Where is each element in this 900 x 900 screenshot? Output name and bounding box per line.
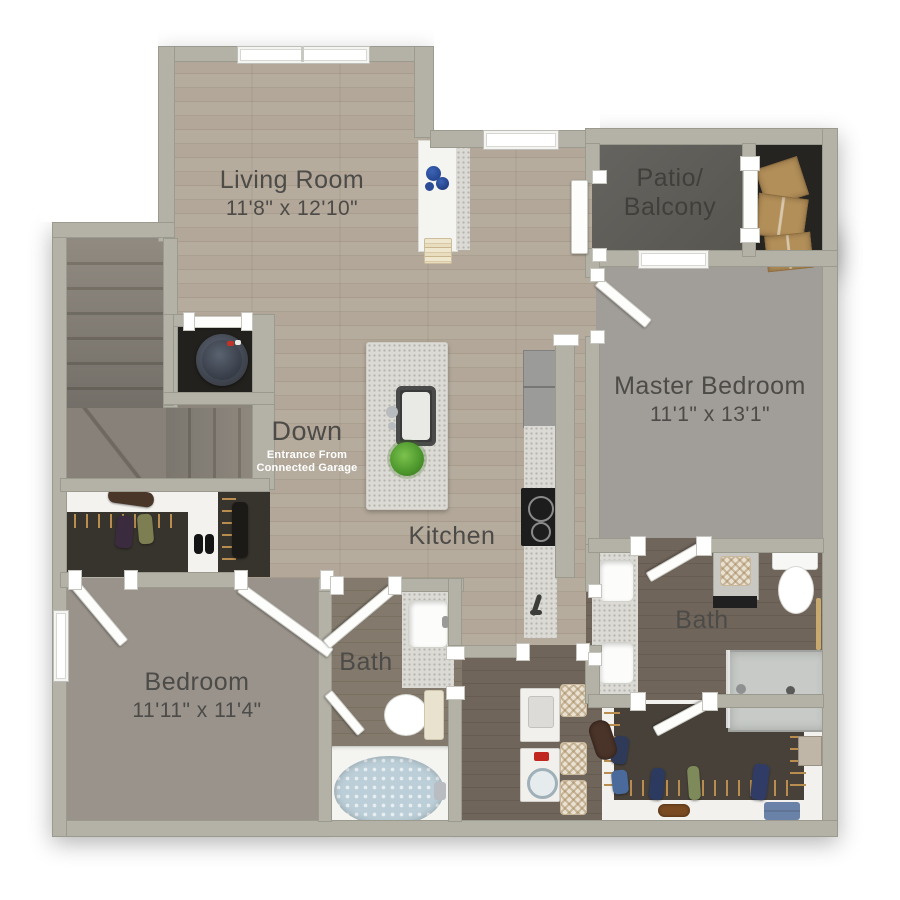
door-jamb — [446, 686, 465, 700]
wall — [52, 222, 67, 837]
wall — [706, 694, 824, 708]
entry-nook-floor — [188, 486, 218, 576]
stove-burner-icon — [531, 522, 551, 542]
wall — [822, 128, 838, 837]
washer-lid-icon — [528, 696, 554, 728]
kitchen-label: Kitchen — [372, 522, 532, 551]
wall — [52, 222, 175, 238]
hanging-clothes-icon — [137, 513, 155, 544]
door-jamb — [234, 570, 248, 590]
door-jamb — [183, 312, 195, 331]
toilet-bowl — [778, 566, 814, 614]
hanging-clothes-icon — [115, 515, 135, 548]
door-jamb — [588, 652, 602, 666]
door-jamb — [446, 646, 465, 660]
folded-jeans-icon — [764, 802, 800, 820]
kitchen-counter — [524, 426, 557, 488]
plant-icon — [390, 442, 424, 476]
shower-glass — [726, 650, 730, 728]
living-room-dims: 11'8" x 12'10" — [167, 197, 417, 221]
exterior-area — [40, 26, 158, 222]
door-jamb — [588, 584, 602, 598]
door-jamb — [68, 570, 82, 590]
door-jamb — [696, 536, 712, 556]
kitchen-sink-faucet-icon — [530, 610, 542, 615]
garage-entrance-note: Entrance From — [232, 449, 382, 462]
living-room-label: Living Room — [167, 166, 417, 195]
master-sink — [598, 642, 634, 684]
bedroom-dims: 11'11" x 11'4" — [72, 699, 322, 723]
water-heater-valve-icon — [227, 341, 234, 346]
wall — [414, 46, 434, 138]
door-jamb — [124, 570, 138, 590]
wall — [585, 336, 600, 546]
blue-bowl-icon — [436, 177, 449, 190]
shoes-icon — [194, 534, 203, 554]
water-heater-closet-door — [187, 316, 247, 328]
basket-icon — [720, 556, 751, 586]
towel-basket-icon — [560, 684, 587, 717]
wall — [555, 338, 575, 578]
door-jamb — [630, 536, 646, 556]
island-faucet-icon — [386, 406, 398, 418]
bedroom-label: Bedroom — [72, 668, 322, 697]
master-bath-label: Bath — [652, 606, 752, 635]
staircase-upper-flight — [67, 240, 163, 408]
door-jamb — [388, 576, 402, 595]
dryer-door-icon — [527, 768, 558, 799]
wall — [585, 250, 838, 267]
wall — [448, 690, 462, 822]
tub-faucet-icon — [434, 782, 446, 800]
storage-door — [743, 166, 758, 232]
island-sink-basin — [402, 392, 430, 440]
stove-burner-icon — [528, 496, 554, 522]
toilet-tank — [424, 690, 444, 740]
shoes-icon — [658, 804, 690, 817]
door-jamb — [630, 692, 646, 711]
patio-door — [571, 180, 588, 254]
door-jamb — [590, 268, 605, 282]
refrigerator — [523, 350, 559, 428]
water-heater-cap-icon — [235, 340, 241, 345]
bath-label: Bath — [316, 648, 416, 677]
towel-bar-icon — [816, 598, 821, 650]
door-jamb — [740, 228, 760, 243]
wall — [585, 128, 838, 145]
exterior-area — [434, 26, 600, 130]
blue-bowl-icon — [425, 182, 434, 191]
door-jamb — [590, 330, 605, 344]
wall — [52, 820, 838, 837]
storage-bin-icon — [798, 736, 822, 766]
door-jamb — [516, 643, 530, 661]
door-jamb — [740, 156, 760, 171]
window — [638, 250, 709, 269]
wall — [60, 478, 270, 492]
shoes-icon — [205, 534, 214, 554]
hanging-clothes-icon — [611, 769, 629, 795]
console-table-edge — [456, 140, 470, 250]
kitchen-counter — [524, 546, 557, 638]
wall — [700, 538, 824, 553]
floor-plan: Living Room 11'8" x 12'10" Patio/ Balcon… — [0, 0, 900, 900]
wall — [128, 572, 240, 588]
window — [483, 130, 559, 150]
toilet-bowl — [384, 694, 428, 736]
shower-valve-icon — [736, 684, 746, 694]
wall — [448, 578, 462, 650]
hanging-clothes-icon — [232, 502, 248, 558]
window — [53, 610, 69, 682]
towel-basket-icon — [560, 780, 587, 815]
patio-label: Balcony — [597, 193, 743, 222]
console-table — [418, 140, 458, 252]
patio-label: Patio/ — [597, 164, 743, 193]
refrigerator-door-split — [523, 386, 557, 388]
door-jamb — [241, 312, 253, 331]
towel-basket-icon — [560, 742, 587, 775]
door-jamb — [330, 576, 344, 595]
stairs-down-label: Down — [232, 416, 382, 447]
hanging-clothes-icon — [687, 766, 701, 801]
master-bedroom-dims: 11'1" x 13'1" — [585, 403, 835, 427]
master-sink — [598, 560, 634, 602]
door-jamb — [702, 692, 718, 711]
door-jamb — [592, 248, 607, 262]
bathtub-water — [334, 756, 444, 826]
window-mullion — [301, 46, 304, 62]
master-bedroom-label: Master Bedroom — [585, 372, 835, 401]
wall-cap — [553, 334, 579, 346]
detergent-icon — [534, 752, 549, 761]
wall — [163, 392, 275, 405]
garage-entrance-note: Connected Garage — [232, 462, 382, 475]
staircase-landing — [67, 408, 166, 488]
stacked-books-icon — [424, 238, 452, 264]
